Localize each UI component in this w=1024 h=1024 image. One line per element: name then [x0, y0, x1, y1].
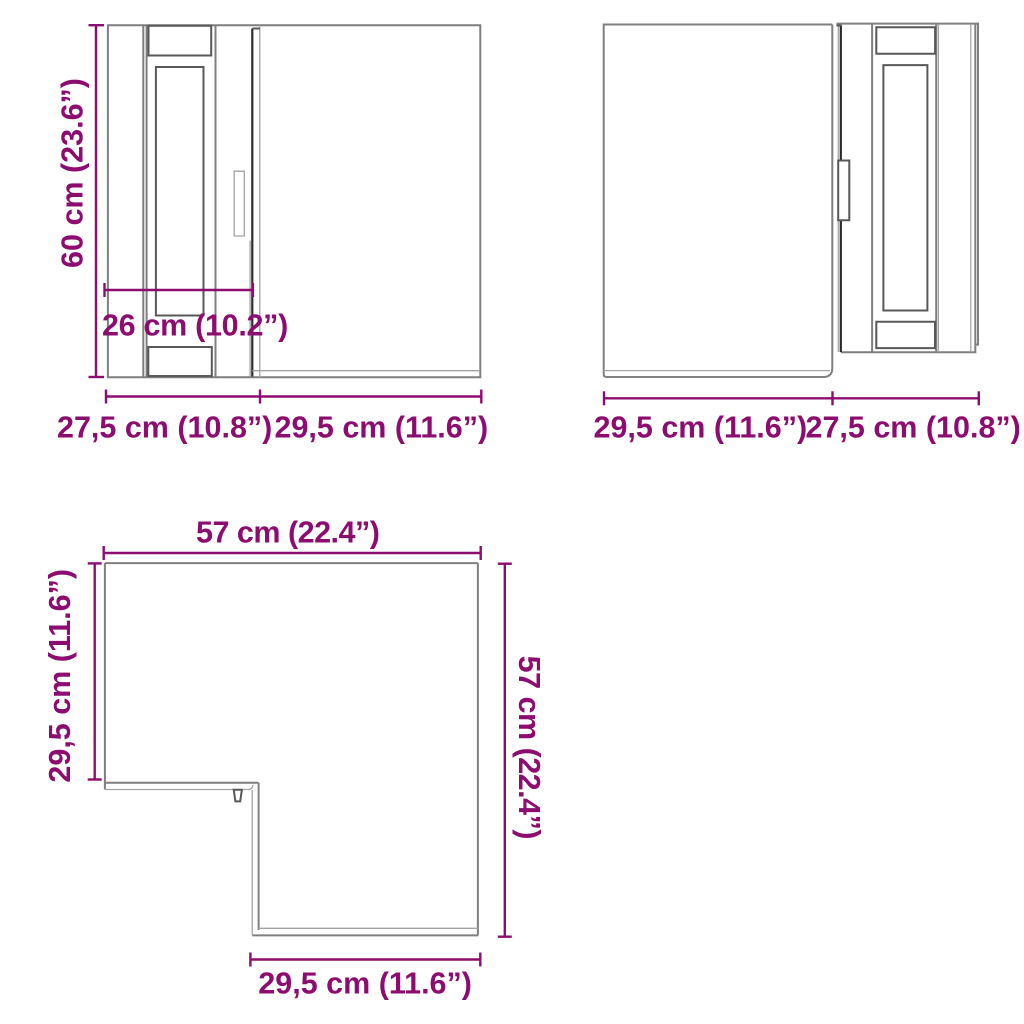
svg-text:57 cm (22.4”): 57 cm (22.4”): [512, 656, 546, 839]
svg-text:29,5 cm (11.6”): 29,5 cm (11.6”): [43, 569, 77, 783]
svg-text:29,5 cm (11.6”): 29,5 cm (11.6”): [258, 966, 472, 1000]
svg-text:27,5 cm (10.8”): 27,5 cm (10.8”): [806, 411, 1021, 445]
svg-text:57 cm (22.4”): 57 cm (22.4”): [196, 516, 379, 550]
svg-text:27,5 cm (10.8”): 27,5 cm (10.8”): [57, 411, 272, 445]
svg-text:60 cm (23.6”): 60 cm (23.6”): [56, 78, 90, 268]
svg-text:26 cm (10.2”): 26 cm (10.2”): [102, 309, 288, 343]
svg-text:29,5 cm (11.6”): 29,5 cm (11.6”): [275, 411, 489, 445]
svg-text:29,5 cm (11.6”): 29,5 cm (11.6”): [594, 411, 808, 445]
